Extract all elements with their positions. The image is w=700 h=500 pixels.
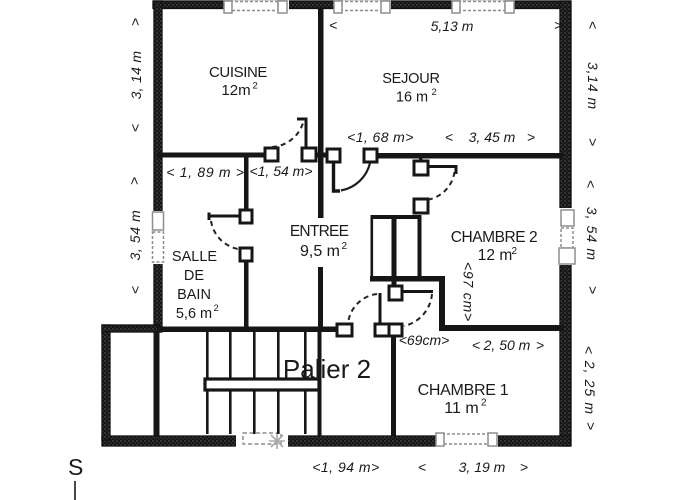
svg-text:< 1, 89 m >: < 1, 89 m > xyxy=(166,164,245,180)
svg-text:<: < xyxy=(581,346,597,354)
svg-text:2, 50 m: 2, 50 m xyxy=(483,337,531,353)
svg-text:2: 2 xyxy=(481,398,487,409)
svg-text:11 m: 11 m xyxy=(444,400,478,417)
svg-text:S: S xyxy=(68,454,83,480)
svg-text:CHAMBRE 1: CHAMBRE 1 xyxy=(418,382,509,399)
svg-text:2: 2 xyxy=(512,246,518,257)
svg-text:>: > xyxy=(527,129,535,145)
svg-text:ENTREE: ENTREE xyxy=(290,223,349,240)
svg-text:5,6 m: 5,6 m xyxy=(176,306,212,322)
svg-text:<97 cm>: <97 cm> xyxy=(461,262,477,322)
svg-text:5,13 m: 5,13 m xyxy=(431,18,474,34)
svg-text:<1, 68 m>: <1, 68 m> xyxy=(347,129,414,145)
svg-text:3, 54 m: 3, 54 m xyxy=(127,210,143,261)
svg-text:2, 25 m: 2, 25 m xyxy=(582,360,598,415)
svg-text:<: < xyxy=(127,286,143,294)
svg-text:3,14 m: 3,14 m xyxy=(585,62,601,110)
svg-text:<1, 94 m>: <1, 94 m> xyxy=(312,459,380,475)
svg-text:<: < xyxy=(472,337,480,353)
svg-text:<: < xyxy=(585,21,601,29)
svg-text:>: > xyxy=(520,459,528,475)
svg-text:2: 2 xyxy=(342,241,348,252)
svg-text:2: 2 xyxy=(253,81,258,92)
svg-text:3, 54 m: 3, 54 m xyxy=(584,207,600,261)
svg-text:3, 19 m: 3, 19 m xyxy=(459,459,506,475)
svg-text:DE: DE xyxy=(184,268,204,284)
svg-text:>: > xyxy=(583,422,599,430)
svg-text:>: > xyxy=(536,337,544,353)
svg-text:<: < xyxy=(418,459,426,475)
svg-text:9,5 m: 9,5 m xyxy=(300,243,340,260)
svg-text:>: > xyxy=(585,286,601,294)
svg-text:2: 2 xyxy=(214,303,219,314)
svg-text:CHAMBRE 2: CHAMBRE 2 xyxy=(451,229,537,246)
svg-text:2: 2 xyxy=(432,87,437,98)
svg-text:>: > xyxy=(126,177,142,185)
svg-text:>: > xyxy=(585,138,601,146)
svg-text:>: > xyxy=(127,18,143,26)
svg-text:<69cm>: <69cm> xyxy=(399,332,450,348)
svg-text:SEJOUR: SEJOUR xyxy=(382,71,440,87)
svg-text:<: < xyxy=(329,17,337,33)
svg-text:12m: 12m xyxy=(221,82,250,99)
svg-text:<: < xyxy=(127,124,143,132)
svg-text:CUISINE: CUISINE xyxy=(209,64,267,81)
svg-text:SALLE: SALLE xyxy=(172,249,217,265)
svg-text:<: < xyxy=(583,180,599,188)
svg-text:3, 14 m: 3, 14 m xyxy=(128,51,144,100)
svg-text:>: > xyxy=(554,17,562,33)
svg-text:<: < xyxy=(445,129,453,145)
svg-text:3, 45 m: 3, 45 m xyxy=(469,129,516,145)
svg-text:Palier 2: Palier 2 xyxy=(283,354,371,384)
svg-text:12 m: 12 m xyxy=(478,247,512,264)
svg-text:<1, 54 m>: <1, 54 m> xyxy=(249,163,312,179)
svg-text:BAIN: BAIN xyxy=(177,287,211,303)
svg-text:16 m: 16 m xyxy=(396,90,428,106)
